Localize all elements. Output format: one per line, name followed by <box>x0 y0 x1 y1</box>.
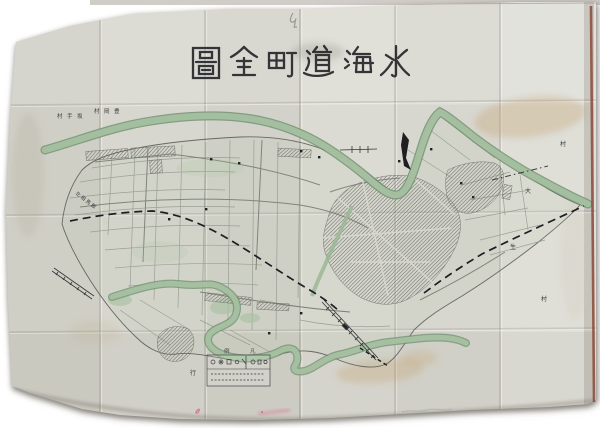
label-east-lower: 生 <box>510 243 516 251</box>
screenshot-root: 圖全町道海水 <box>0 0 600 428</box>
label-east-upper: 大 <box>525 187 531 195</box>
map-title: 圖全町道海水 <box>193 41 424 81</box>
legend-frame <box>207 355 270 386</box>
label-toyooka-village: 村岡豊 <box>94 107 124 115</box>
label-village-southeast: 村 <box>541 295 547 303</box>
legend-title-left: 例 <box>224 347 230 355</box>
label-village-east: 村 <box>560 140 566 148</box>
label-south: 行 <box>190 369 196 377</box>
label-sakate-village: 村手坂 <box>57 112 87 120</box>
legend-title-right: 凡 <box>250 348 256 355</box>
paper-surface: 圖全町道海水 <box>0 0 600 428</box>
map-photo: 圖全町道海水 <box>0 0 600 428</box>
